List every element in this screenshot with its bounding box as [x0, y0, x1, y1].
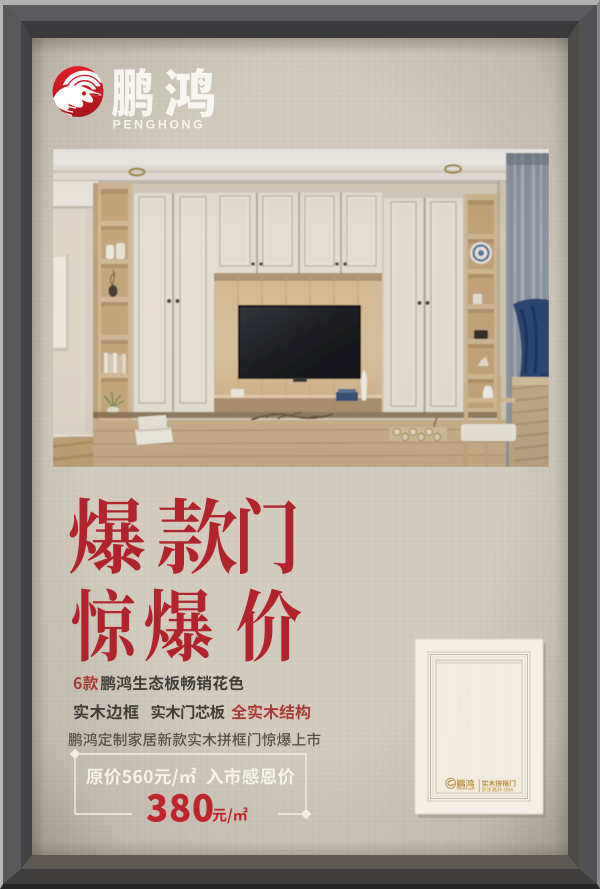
svg-text:PENGHONG: PENGHONG	[113, 118, 206, 132]
